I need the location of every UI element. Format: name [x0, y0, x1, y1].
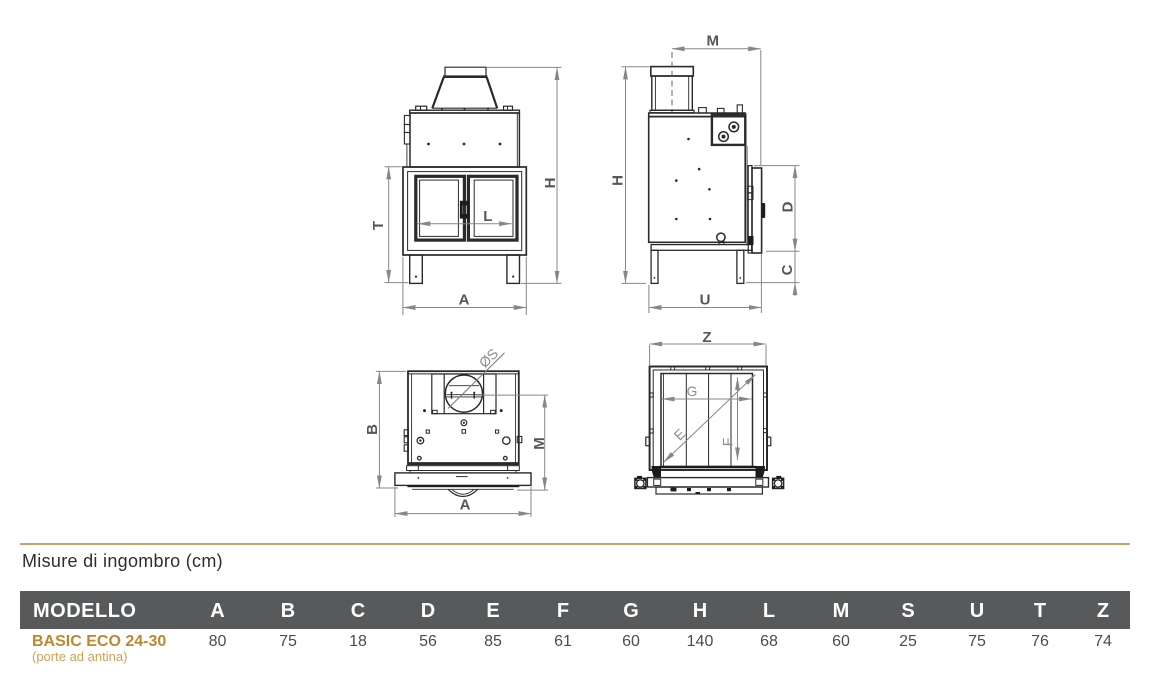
svg-text:M: M	[531, 437, 548, 450]
svg-text:G: G	[687, 383, 698, 399]
svg-text:A: A	[459, 292, 470, 309]
svg-text:H: H	[542, 178, 559, 189]
svg-text:T: T	[370, 221, 387, 230]
svg-text:U: U	[700, 292, 711, 309]
svg-text:H: H	[610, 175, 627, 186]
svg-text:D: D	[780, 201, 797, 212]
svg-text:B: B	[364, 424, 381, 435]
svg-text:M: M	[707, 33, 720, 50]
svg-text:A: A	[460, 497, 471, 514]
svg-text:L: L	[483, 208, 492, 225]
svg-text:ØS: ØS	[476, 345, 502, 371]
svg-text:Z: Z	[702, 329, 711, 346]
svg-text:C: C	[779, 264, 796, 275]
svg-text:F: F	[720, 438, 736, 447]
